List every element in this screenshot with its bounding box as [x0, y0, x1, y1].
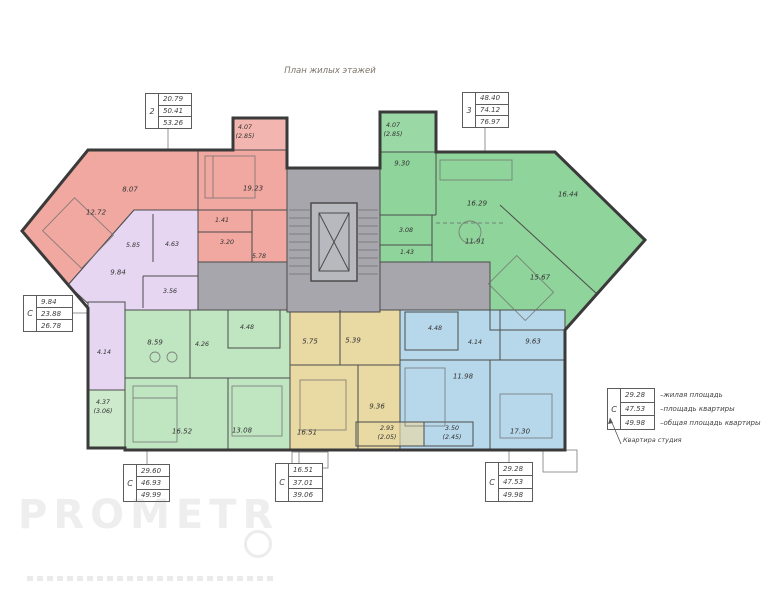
- total-area-value: 53.26: [159, 117, 191, 128]
- total-area-value: 76.97: [476, 116, 508, 127]
- room-area-label: 9.36: [369, 404, 385, 411]
- room-area-label: 11.91: [465, 239, 485, 246]
- living-area-value: 29.60: [137, 465, 169, 477]
- total-area-value: 39.06: [289, 489, 322, 501]
- studio-marker: С: [608, 389, 621, 429]
- living-area-value: 9.84: [37, 296, 72, 308]
- legend: С 29.28 47.53 49.98 –жилая площадь –площ…: [607, 388, 771, 444]
- room-area-label: 5.75: [302, 339, 318, 346]
- balcony-area-label: (2.85): [236, 134, 255, 140]
- room-area-label: 3.08: [399, 228, 413, 234]
- legend-living-area: 29.28: [621, 389, 654, 403]
- studio-left-loggia: [88, 302, 125, 390]
- room-area-label: 16.29: [467, 201, 487, 208]
- room-area-label: 9.63: [525, 339, 541, 346]
- legend-total-area: 49.98: [621, 416, 654, 429]
- studio-marker: С: [24, 296, 37, 331]
- room-area-label: 3.20: [220, 240, 234, 246]
- apartment-area-value: 74.12: [476, 105, 508, 117]
- room-area-label: 9.84: [110, 270, 126, 277]
- apartment-number: 2: [146, 94, 159, 128]
- total-area-value: 49.98: [499, 489, 532, 501]
- room-area-label: 5.78: [252, 254, 266, 260]
- apartment-area-value: 37.01: [289, 477, 322, 490]
- apartment-number: 3: [463, 93, 476, 127]
- room-area-label: 1.43: [400, 250, 414, 256]
- legend-desc-apartment: –площадь квартиры: [660, 402, 761, 416]
- room-area-label: 4.48: [240, 325, 254, 331]
- watermark-text: PROMETR: [18, 492, 279, 538]
- watermark-fineprint: [27, 576, 277, 581]
- area-summary-box-apartment-3: 3 48.40 74.12 76.97: [462, 92, 509, 128]
- living-area-value: 16.51: [289, 464, 322, 477]
- room-area-label: 4.26: [195, 342, 209, 348]
- room-area-label: 13.08: [232, 428, 252, 435]
- area-summary-box-bottom-middle: С 16.51 37.01 39.06: [275, 463, 323, 502]
- total-area-value: 26.78: [37, 320, 72, 331]
- balcony-area-label: (2.05): [378, 435, 397, 441]
- area-summary-box-apartment-2: 2 20.79 50.41 53.26: [145, 93, 192, 129]
- apartment-bottom-right-upper: [490, 310, 565, 330]
- apartment-area-value: 46.93: [137, 477, 169, 489]
- room-area-label: 11.98: [453, 374, 473, 381]
- room-area-label: 5.39: [345, 338, 361, 345]
- room-area-label: 16.51: [297, 430, 317, 437]
- balcony-area-label: 4.37: [96, 400, 110, 406]
- studio-marker: С: [486, 463, 499, 501]
- room-area-label: 16.52: [172, 429, 192, 436]
- room-area-label: 12.72: [86, 210, 106, 217]
- balcony-area-label: (2.85): [384, 132, 403, 138]
- room-area-label: 9.30: [394, 161, 410, 168]
- room-area-label: 8.59: [147, 340, 163, 347]
- area-summary-box-bottom-right: С 29.28 47.53 49.98: [485, 462, 533, 502]
- living-area-value: 48.40: [476, 93, 508, 105]
- page-title: План жилых этажей: [250, 66, 410, 76]
- room-area-label: 4.14: [468, 340, 482, 346]
- room-area-label: 17.30: [510, 429, 530, 436]
- room-area-label: 15.67: [530, 275, 550, 282]
- legend-sample-box: С 29.28 47.53 49.98: [607, 388, 655, 430]
- apartment-area-value: 47.53: [499, 476, 532, 489]
- legend-footnote: Квартира студия: [623, 436, 771, 444]
- living-area-value: 20.79: [159, 94, 191, 106]
- room-area-label: 4.48: [428, 326, 442, 332]
- balcony-area-label: 3.50: [445, 426, 459, 432]
- room-area-label: 1.41: [215, 218, 229, 224]
- floor-plan-page: План жилых этажей 12.72 8.07 19.23 1.41 …: [0, 0, 771, 600]
- apartment-area-value: 50.41: [159, 106, 191, 118]
- room-area-label: 8.07: [122, 187, 138, 194]
- apartment-area-value: 23.88: [37, 308, 72, 320]
- room-area-label: 19.23: [243, 186, 263, 193]
- balcony-area-label: (3.06): [94, 409, 113, 415]
- living-area-value: 29.28: [499, 463, 532, 476]
- loggia-area-label: 4.14: [97, 350, 111, 356]
- room-area-label: 3.56: [163, 289, 177, 295]
- room-area-label: 4.63: [165, 242, 179, 248]
- balcony-area-label: 4.07: [386, 123, 400, 129]
- balcony-area-label: 4.07: [238, 125, 252, 131]
- room-area-label: 5.85: [126, 243, 140, 249]
- balcony-area-label: 2.93: [380, 426, 394, 432]
- room-area-label: 16.44: [558, 192, 578, 199]
- watermark-logo-icon: [244, 530, 272, 558]
- balcony-area-label: (2.45): [443, 435, 462, 441]
- legend-desc-total: –общая площадь квартиры: [660, 416, 761, 430]
- legend-apartment-area: 47.53: [621, 403, 654, 417]
- legend-desc-living: –жилая площадь: [660, 388, 761, 402]
- apartment-bottom-left-region: [125, 310, 290, 450]
- area-summary-box-studio-left: С 9.84 23.88 26.78: [23, 295, 73, 332]
